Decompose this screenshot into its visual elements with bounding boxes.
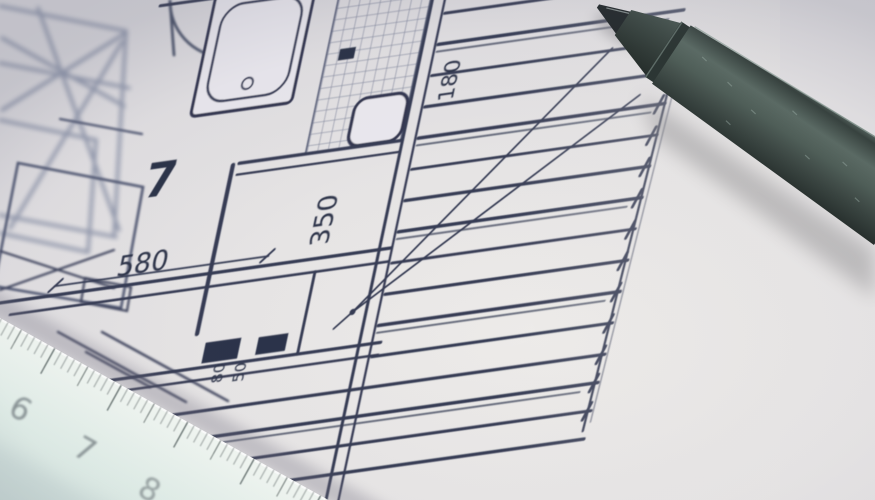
vignette: [0, 0, 875, 500]
photo-canvas: 580 7 350 180 80 50: [0, 0, 875, 500]
blueprint-photo: 580 7 350 180 80 50: [0, 0, 875, 500]
